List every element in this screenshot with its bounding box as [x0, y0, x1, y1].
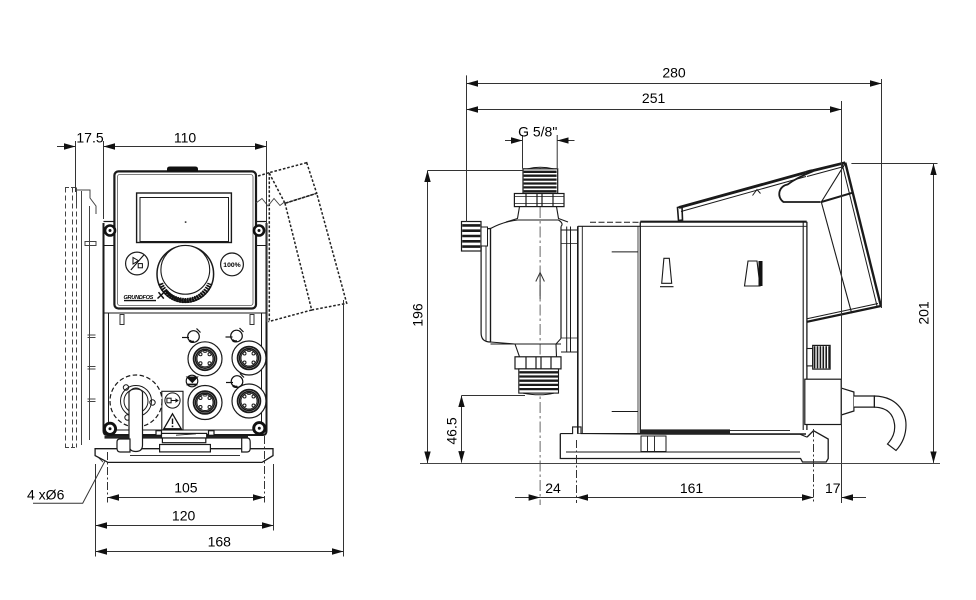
svg-text:24: 24: [545, 480, 561, 496]
svg-text:196: 196: [410, 303, 426, 327]
svg-text:168: 168: [208, 533, 232, 549]
svg-text:17.5: 17.5: [76, 130, 103, 146]
svg-text:251: 251: [642, 90, 666, 106]
svg-text:120: 120: [172, 507, 196, 523]
svg-text:201: 201: [916, 301, 932, 325]
svg-text:105: 105: [174, 480, 198, 496]
svg-text:46.5: 46.5: [443, 417, 459, 444]
svg-text:G 5/8": G 5/8": [518, 123, 557, 139]
svg-text:110: 110: [174, 130, 197, 146]
svg-text:4 xØ6: 4 xØ6: [27, 487, 65, 503]
svg-text:280: 280: [662, 65, 686, 81]
svg-text:100%: 100%: [223, 262, 240, 269]
svg-text:17: 17: [825, 480, 841, 496]
svg-text:161: 161: [680, 480, 704, 496]
